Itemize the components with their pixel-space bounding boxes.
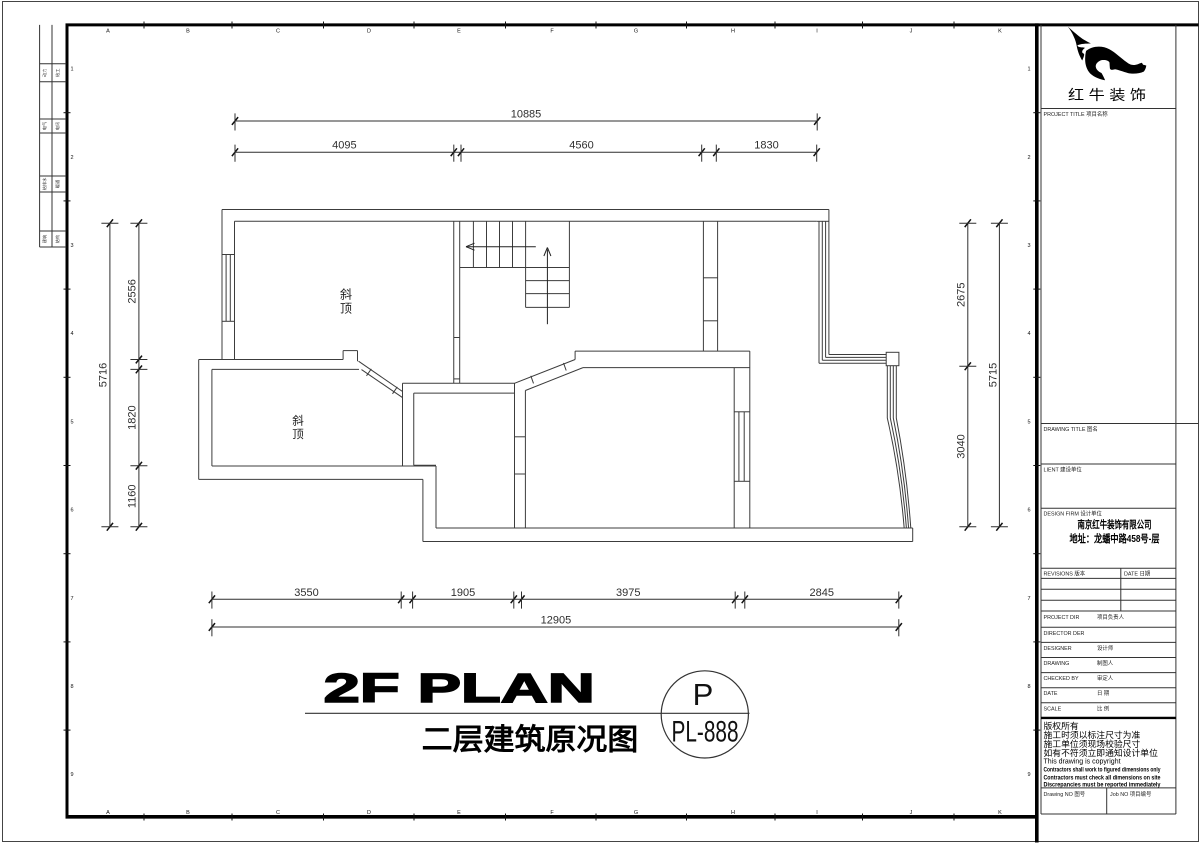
svg-text:Contractors shall work to figu: Contractors shall work to figured dimens… xyxy=(1044,767,1161,774)
svg-text:5: 5 xyxy=(1027,419,1030,425)
svg-text:1830: 1830 xyxy=(754,140,778,152)
svg-text:结构: 结构 xyxy=(54,235,61,243)
svg-text:2: 2 xyxy=(71,155,74,161)
svg-text:1: 1 xyxy=(71,67,74,73)
svg-text:2675: 2675 xyxy=(955,283,967,307)
svg-text:2F PLAN: 2F PLAN xyxy=(324,665,595,711)
svg-text:顶: 顶 xyxy=(340,302,352,316)
svg-text:DATE 日期: DATE 日期 xyxy=(1124,571,1150,578)
svg-text:电讯: 电讯 xyxy=(54,121,61,130)
svg-text:10885: 10885 xyxy=(511,109,542,121)
svg-text:4560: 4560 xyxy=(569,140,593,152)
svg-text:Contractors must check all dim: Contractors must check all dimensions on… xyxy=(1044,775,1161,782)
svg-text:建筑: 建筑 xyxy=(41,234,48,243)
svg-text:4: 4 xyxy=(71,331,74,337)
svg-text:顶: 顶 xyxy=(292,428,304,441)
svg-text:8: 8 xyxy=(71,684,74,690)
svg-text:2: 2 xyxy=(1027,155,1030,161)
svg-text:DRAWING TITLE 图名: DRAWING TITLE 图名 xyxy=(1044,425,1098,433)
svg-text:3975: 3975 xyxy=(616,587,640,599)
svg-text:D: D xyxy=(367,29,371,35)
svg-text:2556: 2556 xyxy=(126,279,138,303)
svg-text:B: B xyxy=(186,810,190,816)
svg-text:3550: 3550 xyxy=(294,587,318,599)
svg-text:SCALE: SCALE xyxy=(1044,707,1062,713)
svg-text:9: 9 xyxy=(71,772,74,778)
svg-text:J: J xyxy=(910,810,913,816)
svg-text:5: 5 xyxy=(71,419,74,425)
svg-text:如有不符须立即通知设计单位: 如有不符须立即通知设计单位 xyxy=(1044,747,1159,758)
svg-text:电气: 电气 xyxy=(41,121,47,130)
svg-text:6: 6 xyxy=(71,508,74,514)
svg-text:PL-888: PL-888 xyxy=(672,716,739,749)
svg-text:K: K xyxy=(998,810,1002,816)
svg-text:E: E xyxy=(457,29,461,35)
svg-text:LIENT 建设单位: LIENT 建设单位 xyxy=(1044,466,1083,474)
svg-text:G: G xyxy=(634,810,638,816)
svg-text:P: P xyxy=(693,677,714,712)
svg-text:7: 7 xyxy=(71,596,74,602)
svg-text:12905: 12905 xyxy=(541,615,572,627)
svg-text:C: C xyxy=(276,810,280,816)
svg-text:K: K xyxy=(998,29,1002,35)
svg-text:3: 3 xyxy=(71,243,74,249)
svg-text:D: D xyxy=(367,810,371,816)
svg-text:9: 9 xyxy=(1027,772,1030,778)
svg-text:比 例: 比 例 xyxy=(1097,705,1109,713)
svg-text:CHECKED BY: CHECKED BY xyxy=(1044,676,1079,682)
svg-text:斜: 斜 xyxy=(292,415,304,428)
svg-text:二层建筑原况图: 二层建筑原况图 xyxy=(422,724,639,757)
svg-text:8: 8 xyxy=(1027,684,1030,690)
svg-text:PROJECT DIR: PROJECT DIR xyxy=(1044,615,1080,621)
svg-text:PROJECT TITLE 项目名称: PROJECT TITLE 项目名称 xyxy=(1044,110,1109,118)
svg-text:G: G xyxy=(634,29,638,35)
svg-text:1160: 1160 xyxy=(126,484,138,508)
svg-text:DRAWING: DRAWING xyxy=(1044,661,1070,667)
svg-text:给排水: 给排水 xyxy=(41,177,48,190)
svg-text:Drawing NO 图号: Drawing NO 图号 xyxy=(1044,790,1086,798)
svg-text:日 期: 日 期 xyxy=(1097,690,1109,697)
svg-text:1: 1 xyxy=(1027,67,1030,73)
svg-text:4095: 4095 xyxy=(332,140,356,152)
svg-text:审定人: 审定人 xyxy=(1097,674,1114,682)
svg-text:5715: 5715 xyxy=(987,363,999,387)
svg-text:制图人: 制图人 xyxy=(1097,659,1114,667)
svg-text:项目负责人: 项目负责人 xyxy=(1097,613,1125,621)
svg-text:DIRECTOR DER: DIRECTOR DER xyxy=(1044,631,1085,637)
svg-text:H: H xyxy=(731,810,735,816)
svg-text:1905: 1905 xyxy=(451,587,475,599)
svg-text:动力: 动力 xyxy=(41,69,48,77)
svg-text:给工: 给工 xyxy=(54,69,61,77)
svg-text:DESIGN FIRM 设计单位: DESIGN FIRM 设计单位 xyxy=(1044,510,1103,518)
svg-text:This drawing is copyright: This drawing is copyright xyxy=(1044,759,1121,766)
svg-text:地址：龙蟠中路458号-层: 地址：龙蟠中路458号-层 xyxy=(1070,532,1160,545)
svg-text:6: 6 xyxy=(1027,508,1030,514)
svg-text:设计师: 设计师 xyxy=(1097,644,1114,652)
svg-text:E: E xyxy=(457,810,461,816)
svg-text:3040: 3040 xyxy=(955,434,967,458)
svg-text:H: H xyxy=(731,29,735,35)
svg-text:4: 4 xyxy=(1027,331,1030,337)
svg-text:J: J xyxy=(910,29,913,35)
svg-text:DATE: DATE xyxy=(1044,691,1058,697)
svg-text:7: 7 xyxy=(1027,596,1030,602)
svg-text:5716: 5716 xyxy=(97,363,109,387)
svg-text:暖通: 暖通 xyxy=(54,179,61,188)
svg-text:DESIGNER: DESIGNER xyxy=(1044,646,1072,652)
svg-text:A: A xyxy=(106,29,110,35)
svg-text:2845: 2845 xyxy=(810,587,834,599)
svg-text:斜: 斜 xyxy=(340,288,352,302)
svg-text:南京红牛装饰有限公司: 南京红牛装饰有限公司 xyxy=(1078,518,1152,531)
svg-text:B: B xyxy=(186,29,190,35)
svg-text:A: A xyxy=(106,810,110,816)
svg-text:红 牛 装 饰: 红 牛 装 饰 xyxy=(1068,87,1146,103)
svg-text:Job NO 项目编号: Job NO 项目编号 xyxy=(1110,790,1152,798)
svg-text:3: 3 xyxy=(1027,243,1030,249)
svg-text:1820: 1820 xyxy=(126,405,138,429)
svg-text:REVISIONS 版本: REVISIONS 版本 xyxy=(1044,570,1086,578)
svg-text:C: C xyxy=(276,29,280,35)
